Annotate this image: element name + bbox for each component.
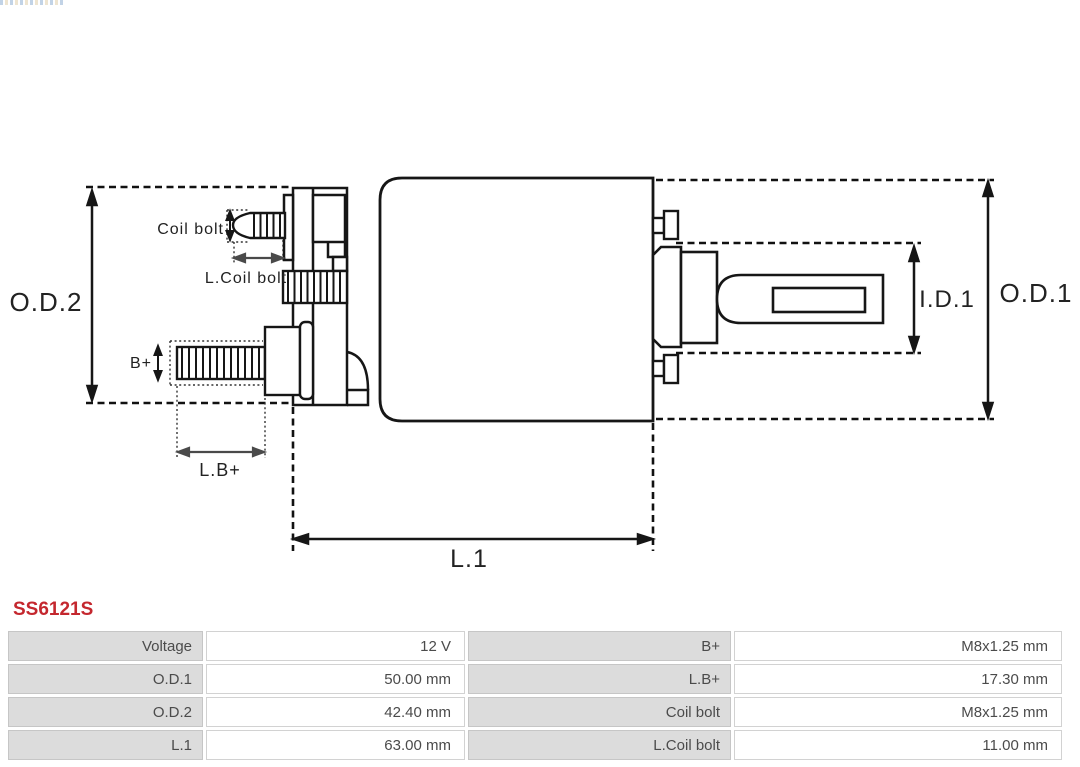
spec-label-cell: Voltage bbox=[8, 631, 203, 661]
shaft-slot bbox=[773, 288, 865, 312]
b-plus-nut bbox=[265, 327, 300, 395]
spec-label-cell: B+ bbox=[468, 631, 731, 661]
od2-label: O.D.2 bbox=[10, 287, 83, 317]
id1-label: I.D.1 bbox=[919, 286, 975, 313]
diagram-svg: O.D.2 O.D.1 I.D.1 Coil bolt L.Coil bolt … bbox=[0, 0, 1080, 600]
spec-value-cell: 50.00 mm bbox=[206, 664, 465, 694]
id1-arrow bbox=[910, 247, 919, 351]
coil-bolt-stud bbox=[233, 213, 285, 238]
l1-label: L.1 bbox=[450, 545, 488, 573]
spec-value-cell: 12 V bbox=[206, 631, 465, 661]
spec-value-cell: 11.00 mm bbox=[734, 730, 1062, 760]
l-coil-bolt-arrow bbox=[234, 254, 283, 262]
b-plus-washer bbox=[300, 322, 313, 399]
spec-label-cell: L.B+ bbox=[468, 664, 731, 694]
lb-plus-label: L.B+ bbox=[199, 460, 241, 480]
spec-label-cell: Coil bolt bbox=[468, 697, 731, 727]
plunger-shaft bbox=[653, 247, 883, 347]
od1-label: O.D.1 bbox=[1000, 278, 1073, 308]
coil-bolt-label: Coil bolt bbox=[157, 221, 224, 238]
spec-label-cell: L.Coil bolt bbox=[468, 730, 731, 760]
spec-table: Voltage 12 V B+ M8x1.25 mm O.D.1 50.00 m… bbox=[8, 631, 1062, 760]
l-coil-bolt-label: L.Coil bolt bbox=[205, 270, 287, 287]
b-plus-label: B+ bbox=[130, 355, 152, 372]
solenoid-body-outline bbox=[380, 178, 653, 421]
spec-label-cell: O.D.1 bbox=[8, 664, 203, 694]
od2-arrow bbox=[88, 191, 97, 400]
od1-arrow bbox=[984, 182, 993, 417]
spec-label-cell: L.1 bbox=[8, 730, 203, 760]
spec-value-cell: M8x1.25 mm bbox=[734, 697, 1062, 727]
spec-label-cell: O.D.2 bbox=[8, 697, 203, 727]
lb-plus-arrow bbox=[178, 448, 264, 456]
spec-value-cell: 63.00 mm bbox=[206, 730, 465, 760]
spec-value-cell: 42.40 mm bbox=[206, 697, 465, 727]
l1-arrow bbox=[294, 535, 652, 544]
b-plus-arrow bbox=[155, 346, 162, 380]
solenoid-dimension-diagram: O.D.2 O.D.1 I.D.1 Coil bolt L.Coil bolt … bbox=[0, 0, 1080, 600]
part-number: SS6121S bbox=[13, 599, 93, 621]
spec-value-cell: 17.30 mm bbox=[734, 664, 1062, 694]
spec-value-cell: M8x1.25 mm bbox=[734, 631, 1062, 661]
